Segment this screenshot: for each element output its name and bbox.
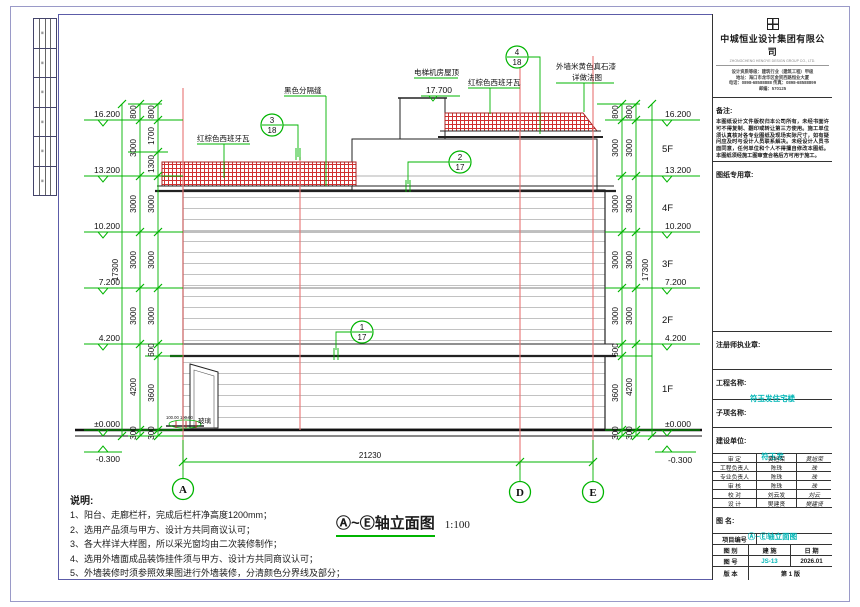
svg-text:详做法图: 详做法图 xyxy=(572,72,602,82)
svg-text:-0.300: -0.300 xyxy=(668,455,692,465)
sheet-type-label: 图 别 xyxy=(713,545,749,555)
svg-text:3000: 3000 xyxy=(611,251,620,269)
svg-text:17: 17 xyxy=(456,163,465,172)
svg-text:10.200: 10.200 xyxy=(94,221,120,231)
svg-text:4: 4 xyxy=(515,48,520,57)
staff-name: 陈珠 xyxy=(757,481,797,490)
svg-text:800: 800 xyxy=(611,105,620,119)
drawing-title-text: Ⓐ~Ⓔ轴立面图 xyxy=(336,512,435,537)
remark-text: 本图纸设计文件版权归本公司所有，未经书面许可不得复制、翻印或转让第三方使用。施工… xyxy=(716,119,829,160)
staff-name: 刘云发 xyxy=(757,490,797,499)
note-item: 5、外墙装修时须参照效果图进行外墙装修，分清颜色分界线及部分； xyxy=(70,566,490,581)
svg-text:外墙米黄色真石漆: 外墙米黄色真石漆 xyxy=(556,61,616,71)
remark-section: 备注: 本图纸设计文件版权归本公司所有，未经书面许可不得复制、翻印或转让第三方使… xyxy=(713,98,832,162)
sheet-no-row: 图 号 JS-13 2026.01 xyxy=(713,556,832,567)
svg-text:3600: 3600 xyxy=(147,384,156,402)
sheet-type-value: 建 施 xyxy=(749,545,791,555)
company-address-line: 电话：0898-68588888 传真：0898-68588899 xyxy=(716,80,829,86)
client-label: 建设单位: xyxy=(716,438,746,445)
svg-text:3: 3 xyxy=(270,116,275,125)
svg-text:3000: 3000 xyxy=(129,251,138,269)
staff-role: 校 对 xyxy=(713,490,757,499)
svg-text:3000: 3000 xyxy=(611,139,620,157)
elevation-marks-left: 16.200 13.200 10.200 7.200 4.200 ±0.000 … xyxy=(84,109,122,464)
elevation-marks-right: 16.200 13.200 10.200 7.200 4.200 ±0.000 … xyxy=(655,109,696,465)
drawing-title: Ⓐ~Ⓔ轴立面图 1:100 xyxy=(336,512,470,537)
svg-text:1700: 1700 xyxy=(147,127,156,145)
svg-text:4F: 4F xyxy=(662,203,673,214)
svg-text:3000: 3000 xyxy=(625,307,634,325)
svg-text:18: 18 xyxy=(513,58,522,67)
staff-signature: 黄旭荣 xyxy=(797,454,831,463)
project-no-row: 项目编号 xyxy=(713,534,832,545)
sheet-date-value: 2026.01 xyxy=(791,556,832,566)
svg-text:600: 600 xyxy=(147,343,156,357)
svg-text:800: 800 xyxy=(129,105,138,119)
staff-table: 审 定 黄旭荣 黄旭荣 工程负责人 陈珠 珠 专业负责人 陈珠 珠 审 核 陈珠… xyxy=(713,454,832,508)
subitem-label: 子项名称: xyxy=(716,410,746,417)
staff-role: 专业负责人 xyxy=(713,472,757,481)
staff-role: 审 定 xyxy=(713,454,757,463)
sheet-no-value: JS-13 xyxy=(749,556,791,566)
staff-name: 樊建贤 xyxy=(757,499,797,508)
svg-text:3000: 3000 xyxy=(625,195,634,213)
svg-text:18: 18 xyxy=(268,126,277,135)
drawing-name-label: 图 名: xyxy=(716,518,734,525)
seal-section: 图纸专用章: xyxy=(713,162,832,332)
drawing-scale: 1:100 xyxy=(445,519,470,531)
svg-text:1: 1 xyxy=(360,323,365,332)
subitem-section: 子项名称: xyxy=(713,400,832,428)
sheet-type-row: 图 别 建 施 日 期 xyxy=(713,545,832,556)
staff-role: 设 计 xyxy=(713,499,757,508)
staff-role: 工程负责人 xyxy=(713,463,757,472)
svg-text:16.200: 16.200 xyxy=(665,109,691,119)
svg-text:3000: 3000 xyxy=(147,195,156,213)
notes-title: 说明: xyxy=(70,492,490,507)
entrance-door: 100.00 100.00 玻璃 xyxy=(166,364,218,428)
svg-text:±0.000: ±0.000 xyxy=(665,419,691,429)
svg-text:3000: 3000 xyxy=(625,139,634,157)
svg-text:3000: 3000 xyxy=(129,139,138,157)
dim-labels-left: 800 3000 3000 3000 3000 4200 300 800 170… xyxy=(111,105,156,440)
sheet-version-row: 版 本 第 1 版 xyxy=(713,567,832,580)
svg-text:E: E xyxy=(589,487,596,499)
svg-text:3000: 3000 xyxy=(129,195,138,213)
machine-room-elevation: 电梯机房屋顶 17.700 xyxy=(414,67,460,101)
staff-role: 审 核 xyxy=(713,481,757,490)
staff-signature: 珠 xyxy=(797,481,831,490)
note-item: 3、各大样详大样图，所以采光窗均由二次装修制作； xyxy=(70,537,490,552)
client-section: 建设单位: 符玉发 xyxy=(713,428,832,454)
svg-text:5F: 5F xyxy=(662,144,673,155)
staff-signature: 珠 xyxy=(797,463,831,472)
svg-text:2: 2 xyxy=(458,153,463,162)
svg-text:10.200: 10.200 xyxy=(665,221,691,231)
svg-text:红棕色西班牙瓦: 红棕色西班牙瓦 xyxy=(468,77,521,87)
company-address-line: 设计资质等级：建筑行业（建筑工程）甲级 xyxy=(716,69,829,75)
svg-text:7.200: 7.200 xyxy=(99,277,121,287)
svg-text:1300: 1300 xyxy=(147,155,156,173)
staff-signature: 珠 xyxy=(797,472,831,481)
svg-text:4200: 4200 xyxy=(625,378,634,396)
company-address: 设计资质等级：建筑行业（建筑工程）甲级 地址：海口市龙华区金贸西路恒业大厦 电话… xyxy=(716,69,829,91)
svg-text:4.200: 4.200 xyxy=(665,333,687,343)
svg-text:600: 600 xyxy=(611,343,620,357)
svg-text:300: 300 xyxy=(129,426,138,440)
seal-label: 图纸专用章: xyxy=(716,172,753,179)
svg-text:3000: 3000 xyxy=(611,195,620,213)
remark-label: 备注: xyxy=(716,108,732,115)
staff-name: 陈珠 xyxy=(757,463,797,472)
staff-name: 黄旭荣 xyxy=(757,454,797,463)
company-name-en: ZHONGCHENG HENGYE DESIGN GROUP CO., LTD. xyxy=(716,59,829,66)
sheet-version-label: 版 本 xyxy=(713,567,749,580)
svg-text:17300: 17300 xyxy=(641,258,650,281)
svg-text:黑色分隔缝: 黑色分隔缝 xyxy=(284,85,322,95)
svg-text:-0.300: -0.300 xyxy=(96,454,120,464)
sheet-no-label: 图 号 xyxy=(713,556,749,566)
svg-text:电梯机房屋顶: 电梯机房屋顶 xyxy=(414,67,459,77)
canopy-band xyxy=(170,344,616,356)
drawing-sheet: 100.00 100.00 玻璃 8 xyxy=(0,0,860,607)
building-body xyxy=(183,98,605,430)
glass-label: 玻璃 xyxy=(198,416,212,425)
company-logo-icon xyxy=(767,18,779,30)
svg-text:红棕色西班牙瓦: 红棕色西班牙瓦 xyxy=(197,133,250,143)
svg-text:300: 300 xyxy=(611,426,620,440)
svg-text:800: 800 xyxy=(147,105,156,119)
sheet-date-label: 日 期 xyxy=(791,545,832,555)
svg-text:1F: 1F xyxy=(662,384,673,395)
svg-text:3000: 3000 xyxy=(129,307,138,325)
drawing-name-section: 图 名: Ⓐ~Ⓔ轴立面图 xyxy=(713,508,832,534)
project-no-label: 项目编号 xyxy=(713,534,757,544)
svg-text:13.200: 13.200 xyxy=(665,165,691,175)
staff-signature: 樊建贤 xyxy=(797,499,831,508)
overall-width-dim: 21230 xyxy=(359,451,382,460)
staff-signature: 刘云 xyxy=(797,490,831,499)
project-name-label: 工程名称: xyxy=(716,380,746,387)
svg-text:17.700: 17.700 xyxy=(426,85,452,95)
company-name: 中城恒业设计集团有限公司 xyxy=(716,32,829,58)
canopy-dim-label: 100.00 100.00 xyxy=(166,415,193,420)
sheet-version-value: 第 1 版 xyxy=(749,567,832,580)
svg-text:3000: 3000 xyxy=(611,307,620,325)
svg-text:2F: 2F xyxy=(662,315,673,326)
svg-text:16.200: 16.200 xyxy=(94,109,120,119)
svg-text:17: 17 xyxy=(358,333,367,342)
svg-text:4200: 4200 xyxy=(129,378,138,396)
svg-text:3000: 3000 xyxy=(625,251,634,269)
svg-text:3600: 3600 xyxy=(611,384,620,402)
svg-text:3F: 3F xyxy=(662,259,673,270)
license-label: 注册师执业章: xyxy=(716,342,760,349)
svg-text:7.200: 7.200 xyxy=(665,277,687,287)
staff-name: 陈珠 xyxy=(757,472,797,481)
company-section: 中城恒业设计集团有限公司 ZHONGCHENG HENGYE DESIGN GR… xyxy=(713,14,832,98)
svg-text:13.200: 13.200 xyxy=(94,165,120,175)
svg-text:300: 300 xyxy=(147,426,156,440)
project-name-section: 工程名称: 符玉发住宅楼 xyxy=(713,370,832,400)
license-section: 注册师执业章: xyxy=(713,332,832,370)
ground-line xyxy=(75,430,702,436)
note-item: 4、选用外墙面成品装饰挂件须与甲方、设计方共同商议认可； xyxy=(70,552,490,567)
svg-text:4.200: 4.200 xyxy=(99,333,121,343)
svg-text:3000: 3000 xyxy=(147,251,156,269)
title-block: 中城恒业设计集团有限公司 ZHONGCHENG HENGYE DESIGN GR… xyxy=(712,14,832,580)
project-no-value xyxy=(757,534,832,544)
company-address-line: 邮编：570125 xyxy=(716,86,829,92)
svg-text:800: 800 xyxy=(625,105,634,119)
svg-text:300: 300 xyxy=(625,426,634,440)
dim-labels-right: 800 3000 3000 3000 3000 600 3600 300 800… xyxy=(611,105,650,440)
svg-text:D: D xyxy=(516,487,524,499)
svg-text:3000: 3000 xyxy=(147,307,156,325)
svg-text:±0.000: ±0.000 xyxy=(94,419,120,429)
